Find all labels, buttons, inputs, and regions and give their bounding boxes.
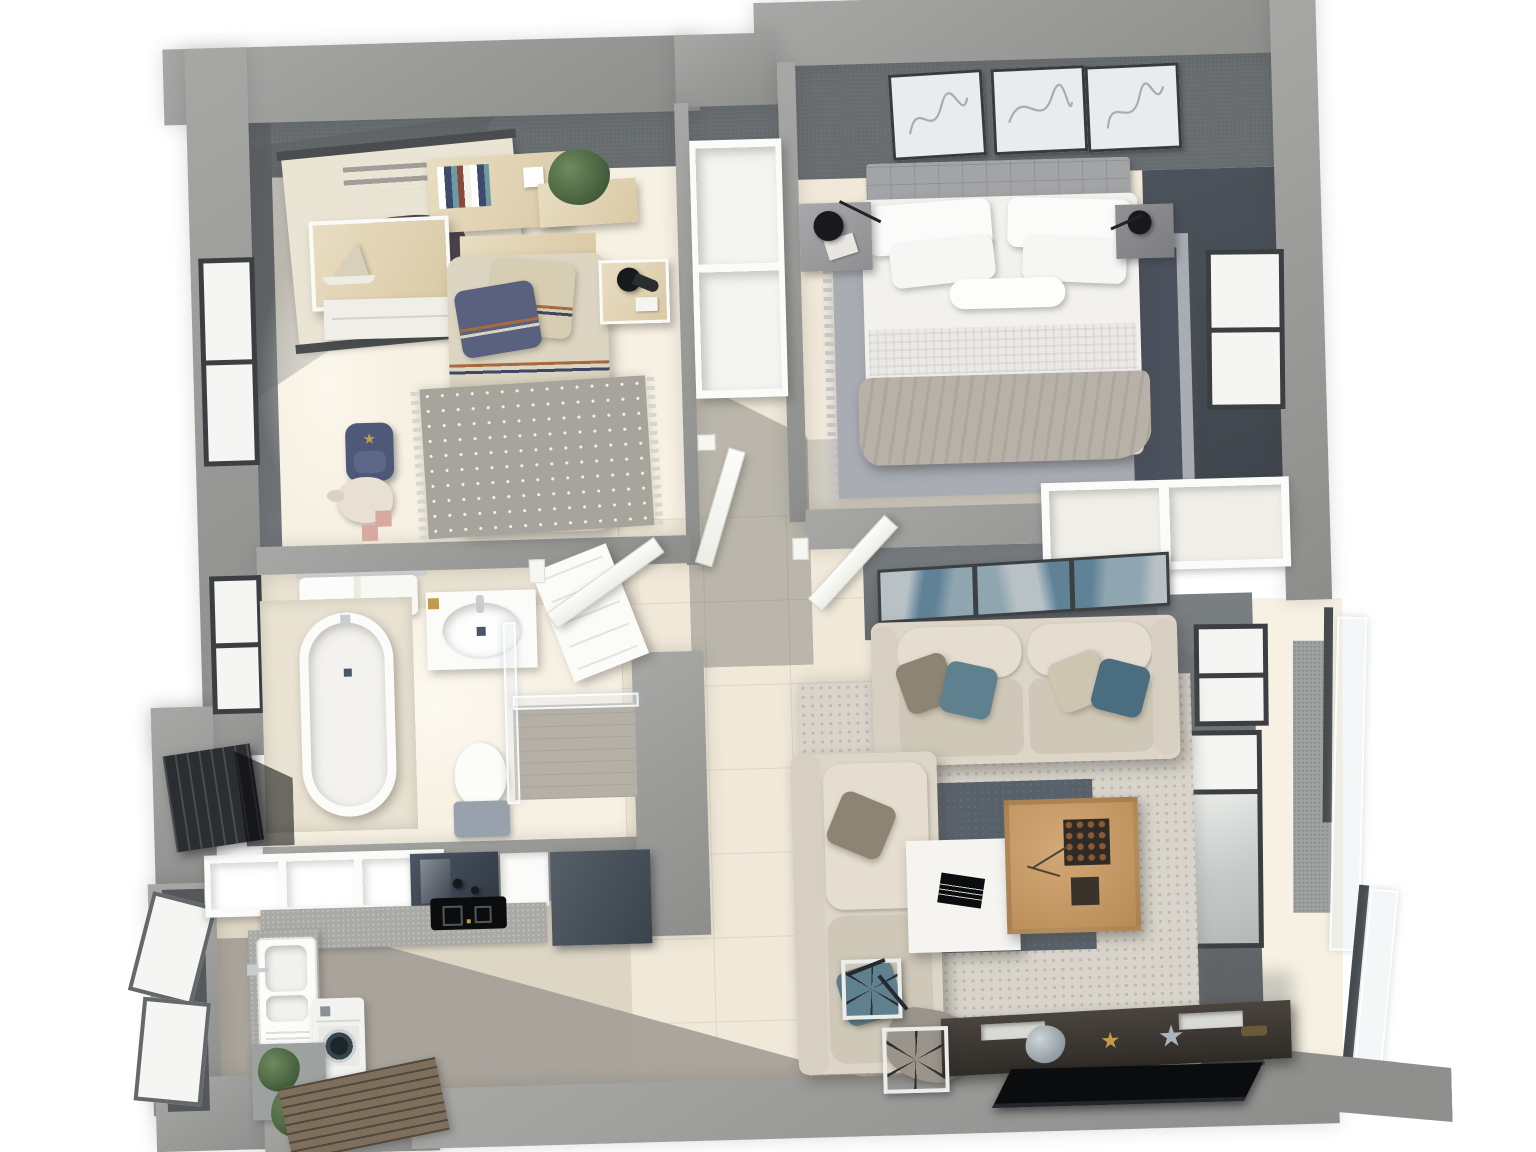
toilet-tank — [453, 800, 510, 838]
carpet-fringe-left — [822, 243, 838, 499]
window-pane — [1199, 677, 1263, 721]
gold-star-ornament — [1101, 1031, 1119, 1050]
bath-faucet — [340, 615, 350, 625]
window-pane — [203, 262, 252, 360]
cabinet-cubby-1 — [210, 862, 279, 910]
white-coffee-table — [906, 838, 1021, 953]
soap-pump — [428, 598, 439, 609]
art-panel-3 — [1074, 555, 1167, 609]
sink-faucet — [476, 595, 484, 613]
wall-hall-top — [674, 32, 778, 107]
master-bedroom — [793, 48, 1290, 519]
pillow-stripes — [459, 317, 540, 342]
pillow-navy-striped — [453, 279, 543, 359]
polka-dot-rug — [419, 375, 654, 539]
window-sash-open-2 — [134, 997, 211, 1107]
bed-lumbar-pillow — [949, 276, 1066, 309]
backpack-star — [363, 433, 375, 445]
sink-faucet-base — [247, 964, 258, 975]
window-pane — [1199, 629, 1263, 673]
black-book — [937, 873, 985, 909]
dresser-lower — [323, 296, 456, 340]
line-art — [891, 72, 984, 157]
sink-drain — [477, 627, 486, 636]
line-art — [994, 68, 1086, 152]
decor-sprig — [1033, 846, 1068, 869]
bicycle-rear-wheel — [882, 1026, 950, 1094]
sailboat-hull — [323, 275, 375, 285]
cushion-teal-1 — [938, 659, 1000, 721]
backpack — [345, 422, 395, 481]
sailboat-decor — [331, 241, 369, 277]
apartment-floorplan-render — [0, 0, 1536, 1152]
window-living-upper — [1194, 624, 1269, 727]
sink-basin-small — [266, 995, 309, 1022]
window-pane — [216, 647, 260, 710]
living-room — [618, 505, 1179, 1098]
vanity-counter — [426, 589, 538, 670]
closet-slot-2 — [1169, 485, 1283, 562]
art-panel-2 — [977, 561, 1070, 615]
books-row — [437, 164, 492, 209]
window-pane — [206, 364, 255, 462]
plush-toy-foot-1 — [375, 510, 391, 526]
wardrobe-slot-top — [695, 147, 778, 265]
toilet-bowl — [454, 742, 508, 807]
main-sofa — [871, 614, 1181, 766]
bathtub-basin — [307, 622, 388, 808]
sink-basin-main — [264, 945, 307, 992]
decor-bowl-large — [1063, 818, 1110, 865]
window-bathroom-west — [209, 575, 265, 714]
doorframe-stub-kids — [697, 434, 715, 450]
wood-coffee-table — [1004, 797, 1142, 935]
decor-bowl-small — [1071, 877, 1100, 906]
bath-drain — [344, 669, 352, 677]
washer-panel-line — [317, 1019, 361, 1022]
decor-sprig-2 — [1027, 866, 1060, 878]
burner-1 — [442, 906, 463, 927]
plush-toy-foot-2 — [362, 525, 378, 541]
kitchen-entry — [204, 837, 672, 1150]
toilet — [452, 742, 511, 844]
cooktop — [430, 896, 507, 930]
panoramic-artwork — [877, 552, 1170, 624]
washer-dial — [320, 1006, 330, 1016]
line-art-frame-1 — [888, 69, 987, 161]
open-wardrobe — [689, 138, 788, 398]
silver-plant-decor — [1025, 1024, 1066, 1064]
line-art — [1088, 66, 1180, 150]
entry-niche-slatted-panel — [162, 743, 264, 852]
rug-fringe-left — [410, 390, 427, 540]
doorframe-stub-master — [792, 538, 809, 560]
line-art-frame-3 — [1084, 62, 1182, 152]
window-pane — [214, 580, 258, 643]
bathtub — [298, 611, 398, 818]
waffle-texture-band — [868, 322, 1137, 375]
balcony-railing-frame-1 — [1323, 607, 1334, 822]
notepad — [635, 297, 657, 312]
burner-2 — [474, 906, 491, 923]
cooktop-indicator — [467, 919, 471, 923]
console-open-slot-2 — [1179, 1010, 1243, 1029]
floorplan — [0, 0, 1536, 1152]
double-bed — [861, 192, 1144, 462]
sofa-armrest-right — [1151, 618, 1181, 755]
duvet-stripe-band — [449, 360, 609, 376]
line-art-frame-2 — [990, 65, 1088, 155]
doorframe-stub-bath — [529, 559, 546, 583]
cabinet-cubby-2 — [286, 860, 355, 908]
gray-throw-blanket — [858, 370, 1152, 466]
rug-fringe-right — [646, 375, 663, 525]
sofa-armrest-left — [871, 626, 901, 763]
kids-bedroom — [246, 108, 690, 572]
flat-tv — [992, 1062, 1263, 1108]
small-decor-items — [1241, 1025, 1267, 1036]
shower-floor — [513, 703, 638, 800]
double-sink — [256, 937, 319, 1059]
art-panel-1 — [880, 567, 973, 621]
drawer-line — [332, 315, 448, 320]
wardrobe-slot-bottom — [699, 270, 782, 390]
backpack-pocket — [354, 451, 387, 474]
white-cubby — [500, 852, 549, 907]
